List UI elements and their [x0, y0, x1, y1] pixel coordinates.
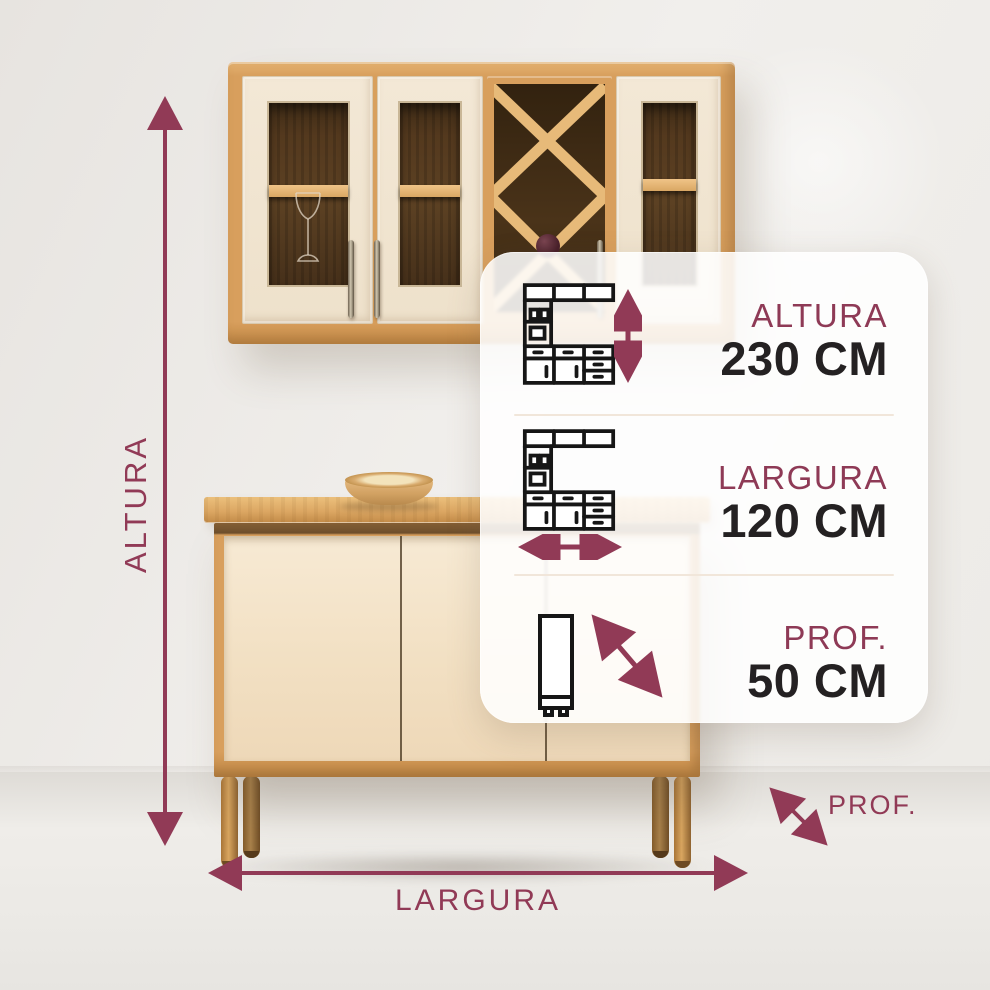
depth-arrow-icon: [580, 604, 676, 708]
sideboard-leg-back-left: [243, 776, 260, 858]
spec-largura: LARGURA 120 CM: [718, 460, 888, 546]
cabinet-shelf: [643, 179, 696, 191]
spec-label: LARGURA: [718, 460, 888, 496]
door-handle: [374, 240, 380, 318]
door-gap: [400, 536, 402, 761]
glass-door-middle: [377, 76, 483, 324]
glass-panel: [398, 101, 462, 287]
sideboard-leg-front-right: [674, 776, 691, 868]
spec-value: 50 CM: [747, 656, 888, 706]
depth-axis-label: PROF.: [828, 790, 918, 821]
card-divider: [514, 414, 894, 416]
spec-altura: ALTURA 230 CM: [720, 298, 888, 384]
dimensions-card: ALTURA 230 CM LARGURA 120 CM PROF. 50 CM: [480, 252, 928, 723]
spec-label: PROF.: [747, 620, 888, 656]
width-arrow-icon: [514, 534, 626, 560]
height-axis-label: ALTURA: [118, 388, 154, 573]
spec-prof: PROF. 50 CM: [747, 620, 888, 706]
decor-bowl: [345, 472, 433, 508]
spec-label: ALTURA: [720, 298, 888, 334]
cabinet-shelf: [400, 185, 460, 197]
spec-value: 120 CM: [718, 496, 888, 546]
sideboard-leg-front-left: [221, 776, 238, 868]
card-divider: [514, 574, 894, 576]
spec-value: 230 CM: [720, 334, 888, 384]
sideboard-leg-back-right: [652, 776, 669, 858]
kitchen-set-icon: [522, 428, 616, 532]
door-handle: [348, 240, 354, 318]
bowl-rim: [345, 472, 433, 488]
tall-cabinet-icon: [534, 614, 578, 718]
kitchen-set-icon: [522, 282, 616, 386]
width-axis-label: LARGURA: [328, 884, 628, 918]
wine-glass: [285, 189, 331, 289]
height-arrow-icon: [614, 286, 642, 386]
glass-panel: [267, 101, 350, 287]
furniture-dimensions-infographic: ALTURA LARGURA PROF. ALTURA 230 CM LARGU…: [0, 0, 990, 990]
